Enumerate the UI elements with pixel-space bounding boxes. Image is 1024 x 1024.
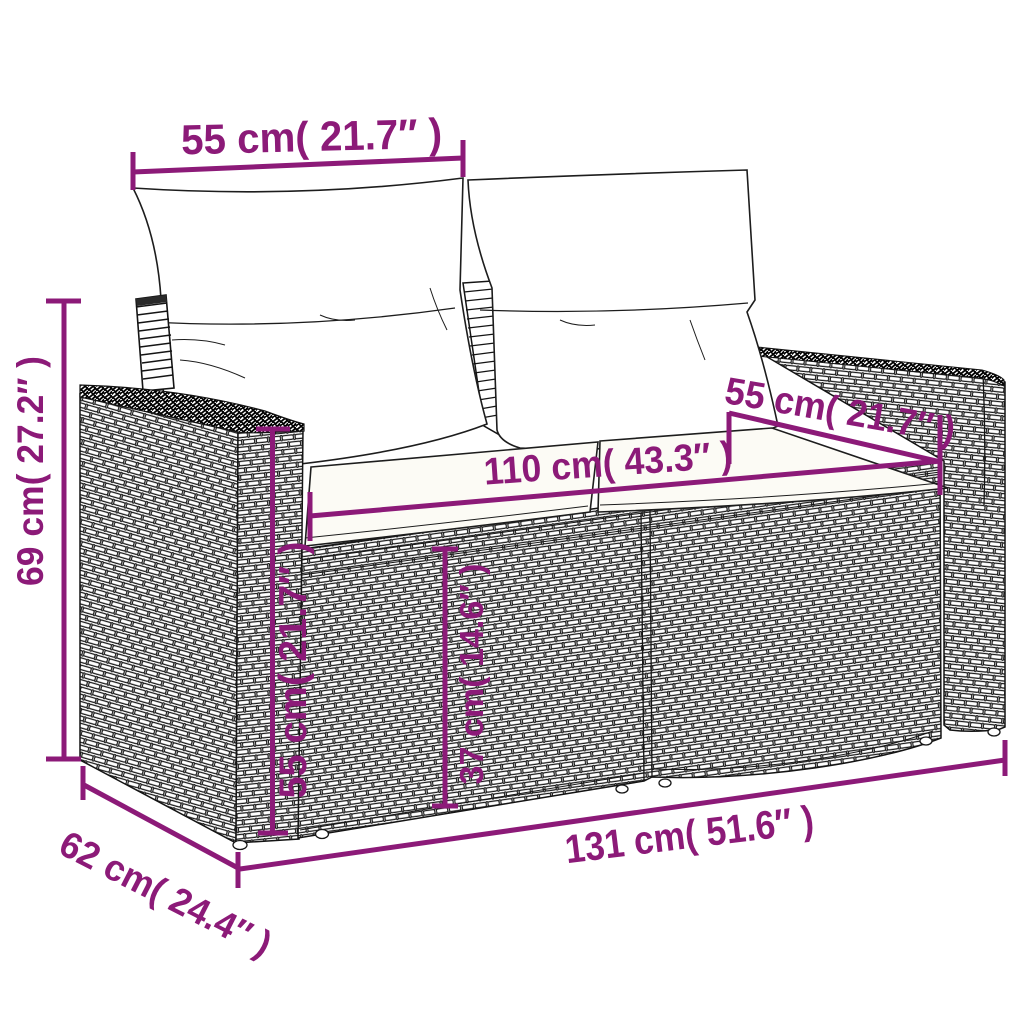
svg-text:55 cm( 21.7″ ): 55 cm( 21.7″ ) — [181, 110, 443, 164]
svg-text:55 cm( 21.7″ ): 55 cm( 21.7″ ) — [272, 542, 315, 799]
svg-text:37 cm( 14.6″ ): 37 cm( 14.6″ ) — [453, 564, 490, 785]
svg-text:69 cm( 27.2″ ): 69 cm( 27.2″ ) — [10, 356, 51, 586]
